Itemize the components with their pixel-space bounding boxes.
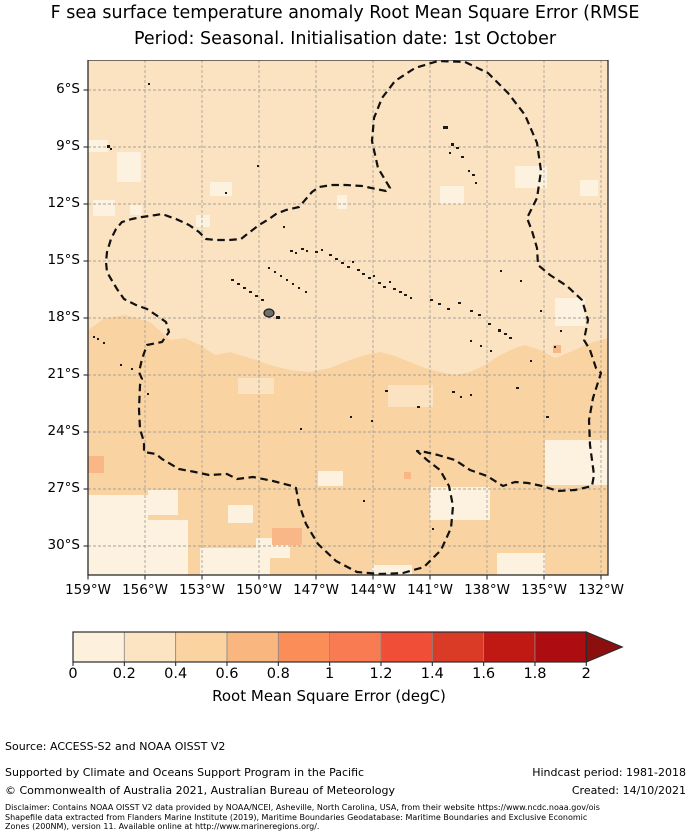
y-tick-label: 21°S: [26, 366, 80, 384]
y-tick-label: 24°S: [26, 423, 80, 441]
island-marker: [475, 182, 477, 184]
island-marker: [341, 262, 344, 264]
island-marker: [286, 279, 288, 281]
supported-text: Supported by Climate and Oceans Support …: [5, 766, 364, 779]
rmse-patch-low: [93, 200, 115, 216]
y-tick-label: 30°S: [26, 537, 80, 555]
colorbar-tick-label: 1.8: [513, 666, 557, 682]
x-tick-label: 132°W: [573, 582, 629, 598]
island-marker: [449, 152, 451, 154]
island-marker: [490, 350, 492, 352]
island-marker: [362, 273, 365, 275]
island-marker: [461, 156, 464, 158]
colorbar-segment: [484, 632, 535, 662]
island-marker: [410, 297, 412, 299]
island-marker: [315, 251, 318, 253]
island-marker: [243, 287, 246, 289]
island-marker: [148, 83, 150, 85]
colorbar-tick-label: 0: [51, 666, 95, 682]
figure-title: F sea surface temperature anomaly Root M…: [0, 3, 690, 23]
island-marker: [389, 281, 391, 283]
island-marker: [546, 416, 549, 418]
island-marker: [443, 126, 448, 129]
rmse-patch-low: [148, 490, 178, 515]
island-marker: [225, 192, 227, 194]
source-text: Source: ACCESS-S2 and NOAA OISST V2: [5, 740, 225, 753]
island-marker: [378, 282, 381, 284]
island-marker: [451, 143, 454, 146]
island-marker: [438, 303, 441, 305]
island-marker: [335, 258, 338, 260]
colorbar-label: Root Mean Square Error (degC): [0, 687, 658, 705]
island-marker: [268, 267, 270, 269]
island-marker: [470, 310, 473, 312]
island-marker: [470, 394, 472, 396]
island-marker: [373, 275, 375, 277]
island-marker: [520, 280, 522, 282]
disclaimer-line-3: Zones (200NM), version 11. Available onl…: [5, 822, 690, 832]
island-marker: [350, 416, 352, 418]
disclaimer-line-1: Disclaimer: Contains NOAA OISST V2 data …: [5, 803, 690, 813]
island-marker: [231, 279, 234, 281]
island-marker: [432, 528, 434, 530]
rmse-patch-high: [88, 456, 104, 473]
x-tick-label: 153°W: [174, 582, 230, 598]
colorbar-segment: [535, 632, 586, 662]
x-tick-label: 150°W: [231, 582, 287, 598]
island-marker: [478, 314, 481, 316]
rmse-patch-low: [148, 520, 188, 575]
island-marker: [383, 286, 386, 288]
rmse-patch-mid: [388, 385, 433, 407]
rmse-patch-low: [555, 298, 585, 326]
island-marker: [456, 147, 459, 149]
tahiti-island-marker: [264, 309, 274, 317]
island-marker: [276, 316, 280, 319]
island-marker: [417, 406, 420, 408]
map-plot: [82, 60, 610, 581]
island-marker: [103, 342, 105, 344]
colorbar: [71, 629, 627, 669]
x-tick-label: 159°W: [60, 582, 116, 598]
figure-subtitle: Period: Seasonal. Initialisation date: 1…: [0, 29, 690, 49]
rmse-patch-low: [545, 440, 608, 485]
colorbar-extend-arrow: [586, 632, 622, 662]
island-marker: [540, 310, 542, 312]
island-marker: [257, 165, 259, 167]
colorbar-tick-label: 0.6: [205, 666, 249, 682]
island-marker: [404, 294, 407, 296]
island-marker: [120, 364, 122, 366]
island-marker: [283, 226, 285, 228]
island-marker: [249, 291, 252, 293]
x-tick-label: 141°W: [402, 582, 458, 598]
island-marker: [131, 368, 133, 370]
rmse-patch-low: [117, 152, 141, 182]
island-marker: [385, 390, 388, 392]
island-marker: [363, 500, 365, 502]
rmse-patch-low: [515, 166, 547, 188]
island-marker: [498, 329, 501, 332]
x-tick-label: 156°W: [117, 582, 173, 598]
y-tick-label: 12°S: [26, 195, 80, 213]
island-marker: [290, 250, 293, 252]
colorbar-segment: [278, 632, 329, 662]
island-marker: [447, 308, 450, 310]
island-marker: [458, 302, 461, 304]
rmse-patch-low: [430, 487, 490, 520]
island-marker: [274, 271, 276, 273]
island-marker: [292, 283, 294, 285]
rmse-patch-mid: [238, 378, 274, 394]
colorbar-segment: [381, 632, 432, 662]
colorbar-tick-label: 0.2: [102, 666, 146, 682]
island-marker: [357, 269, 360, 271]
rmse-patch-low: [497, 553, 545, 575]
island-marker: [452, 391, 455, 393]
island-marker: [255, 295, 258, 297]
colorbar-segment: [330, 632, 381, 662]
island-marker: [371, 420, 373, 422]
x-tick-label: 144°W: [345, 582, 401, 598]
y-tick-label: 18°S: [26, 309, 80, 327]
island-marker: [237, 283, 240, 285]
island-marker: [468, 170, 470, 172]
island-marker: [295, 252, 297, 254]
x-tick-label: 135°W: [516, 582, 572, 598]
island-marker: [110, 148, 112, 150]
island-marker: [480, 345, 482, 347]
island-marker: [368, 277, 371, 279]
colorbar-tick-label: 1: [308, 666, 352, 682]
island-marker: [93, 336, 95, 338]
island-marker: [472, 174, 475, 176]
rmse-patch-high: [272, 528, 302, 545]
island-marker: [280, 275, 282, 277]
colorbar-tick-label: 0.8: [256, 666, 300, 682]
island-marker: [509, 337, 512, 339]
x-tick-label: 147°W: [288, 582, 344, 598]
hindcast-period-text: Hindcast period: 1981-2018: [532, 766, 686, 779]
colorbar-tick-label: 2: [564, 666, 608, 682]
island-marker: [107, 145, 110, 148]
island-marker: [399, 291, 402, 293]
island-marker: [560, 330, 562, 332]
island-marker: [298, 287, 300, 289]
figure: F sea surface temperature anomaly Root M…: [0, 0, 690, 839]
island-marker: [470, 340, 472, 342]
island-marker: [347, 266, 350, 268]
rmse-patch-low: [580, 180, 598, 196]
island-marker: [488, 323, 491, 325]
island-marker: [352, 261, 354, 263]
island-marker: [504, 333, 507, 335]
y-tick-label: 9°S: [26, 138, 80, 156]
y-tick-label: 27°S: [26, 480, 80, 498]
island-marker: [554, 346, 556, 348]
island-marker: [261, 299, 264, 301]
x-tick-label: 138°W: [459, 582, 515, 598]
rmse-patch-low: [88, 495, 148, 575]
island-marker: [500, 270, 502, 272]
rmse-patch-low: [228, 505, 253, 523]
copyright-text: © Commonwealth of Australia 2021, Austra…: [5, 784, 395, 797]
rmse-patch-low: [440, 186, 464, 204]
y-tick-label: 6°S: [26, 81, 80, 99]
rmse-patch-low: [88, 140, 108, 152]
island-marker: [329, 254, 332, 256]
island-marker: [306, 250, 308, 252]
island-marker: [301, 248, 304, 250]
rmse-patch-low: [337, 195, 347, 209]
colorbar-segment: [124, 632, 175, 662]
island-marker: [97, 338, 99, 340]
colorbar-tick-label: 1.4: [410, 666, 454, 682]
rmse-patch-low: [318, 471, 343, 486]
colorbar-segment: [227, 632, 278, 662]
island-marker: [300, 428, 302, 430]
rmse-patch-low: [130, 205, 142, 215]
colorbar-tick-label: 0.4: [154, 666, 198, 682]
colorbar-tick-label: 1.2: [359, 666, 403, 682]
colorbar-segment: [176, 632, 227, 662]
island-marker: [430, 299, 433, 301]
colorbar-segment: [73, 632, 124, 662]
created-date-text: Created: 14/10/2021: [572, 784, 686, 797]
rmse-patch-high: [404, 472, 411, 479]
island-marker: [147, 393, 149, 395]
colorbar-segment: [432, 632, 483, 662]
disclaimer-line-2: Shapefile data extracted from Flanders M…: [5, 813, 690, 823]
rmse-patch-low: [210, 182, 232, 196]
island-marker: [516, 387, 519, 389]
island-marker: [305, 291, 307, 293]
island-marker: [530, 360, 532, 362]
y-tick-label: 15°S: [26, 252, 80, 270]
island-marker: [321, 249, 323, 251]
colorbar-tick-label: 1.6: [462, 666, 506, 682]
island-marker: [460, 396, 462, 398]
rmse-patch-low: [196, 215, 210, 227]
island-marker: [393, 288, 396, 290]
